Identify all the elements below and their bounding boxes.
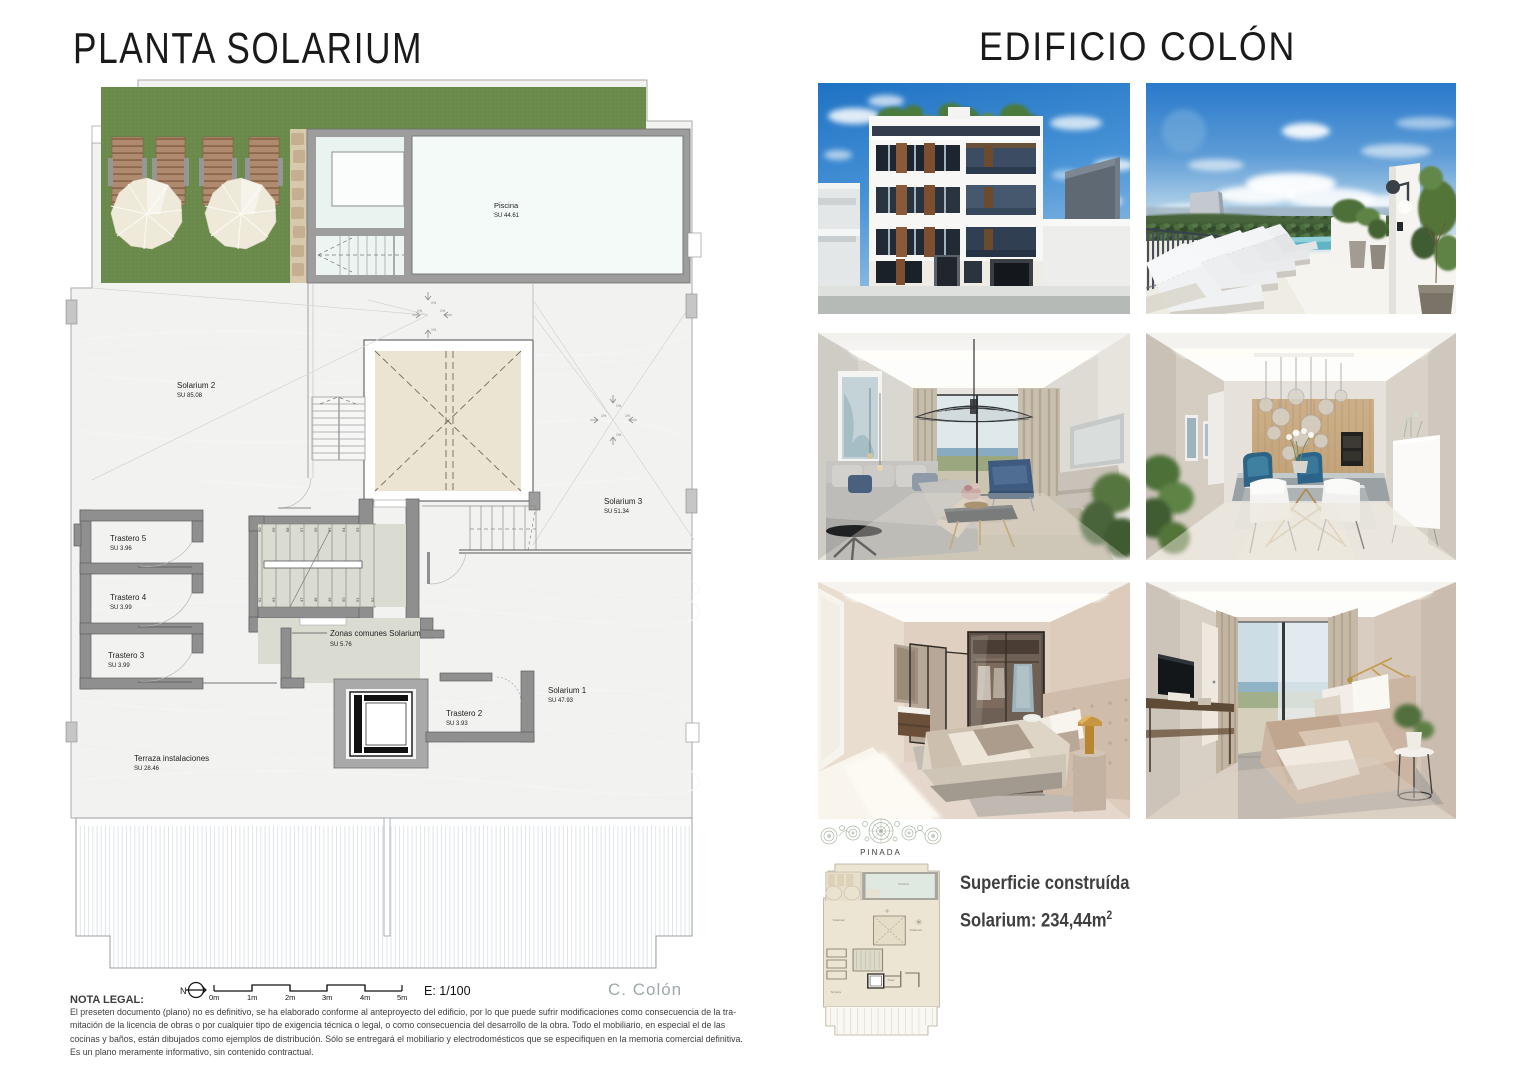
svg-text:58: 58 — [285, 527, 290, 532]
svg-text:Trastero 3: Trastero 3 — [108, 651, 145, 660]
svg-text:Solarium 3: Solarium 3 — [604, 497, 643, 506]
svg-text:63: 63 — [271, 597, 276, 602]
svg-text:SU 51.34: SU 51.34 — [604, 509, 630, 515]
svg-text:Trast.: Trast. — [887, 978, 895, 982]
svg-text:1%: 1% — [616, 404, 621, 408]
svg-text:SU 28.46: SU 28.46 — [134, 766, 160, 772]
svg-text:1%: 1% — [431, 328, 436, 332]
svg-text:1%: 1% — [601, 414, 606, 418]
svg-text:SU 85.08: SU 85.08 — [177, 393, 203, 399]
svg-text:Zonas comunes Solarium: Zonas comunes Solarium — [330, 629, 421, 638]
svg-text:60: 60 — [257, 527, 262, 532]
svg-text:Terraza: Terraza — [830, 990, 841, 994]
svg-text:SU 3.99: SU 3.99 — [110, 605, 132, 611]
svg-text:1%: 1% — [431, 301, 436, 305]
svg-text:56: 56 — [313, 527, 318, 532]
svg-text:55: 55 — [327, 527, 332, 532]
svg-text:52: 52 — [370, 597, 375, 602]
svg-text:Trastero 4: Trastero 4 — [110, 593, 147, 602]
svg-text:1%: 1% — [625, 414, 630, 418]
svg-text:SU 3.96: SU 3.96 — [110, 546, 132, 552]
svg-text:57: 57 — [299, 527, 304, 532]
svg-text:SU 5.76: SU 5.76 — [330, 642, 352, 648]
svg-text:1%: 1% — [440, 309, 445, 313]
svg-text:50: 50 — [341, 597, 346, 602]
svg-text:48: 48 — [313, 597, 318, 602]
svg-text:PINADA: PINADA — [860, 848, 902, 857]
svg-text:Solarium 1: Solarium 1 — [548, 686, 587, 695]
svg-text:SU 3.93: SU 3.93 — [446, 721, 468, 727]
svg-text:Terraza instalaciones: Terraza instalaciones — [134, 754, 209, 763]
svg-text:54: 54 — [341, 527, 346, 532]
svg-text:53: 53 — [355, 527, 360, 532]
svg-text:Piscina: Piscina — [898, 882, 909, 886]
svg-text:Piscina: Piscina — [494, 201, 519, 210]
svg-text:Trastero 5: Trastero 5 — [110, 534, 147, 543]
svg-text:51: 51 — [355, 597, 360, 602]
svg-text:1%: 1% — [616, 433, 621, 437]
svg-text:Solarium 2: Solarium 2 — [177, 381, 216, 390]
svg-text:49: 49 — [327, 597, 332, 602]
svg-text:Solarium: Solarium — [910, 928, 923, 932]
svg-text:62: 62 — [257, 597, 262, 602]
svg-text:Solarium: Solarium — [833, 918, 846, 922]
svg-text:SU 3.99: SU 3.99 — [108, 663, 130, 669]
svg-text:59: 59 — [271, 527, 276, 532]
svg-text:SU 47.93: SU 47.93 — [548, 698, 574, 704]
svg-text:Trastero 2: Trastero 2 — [446, 709, 483, 718]
svg-text:47: 47 — [299, 597, 304, 602]
svg-text:SU 44.61: SU 44.61 — [494, 213, 520, 219]
